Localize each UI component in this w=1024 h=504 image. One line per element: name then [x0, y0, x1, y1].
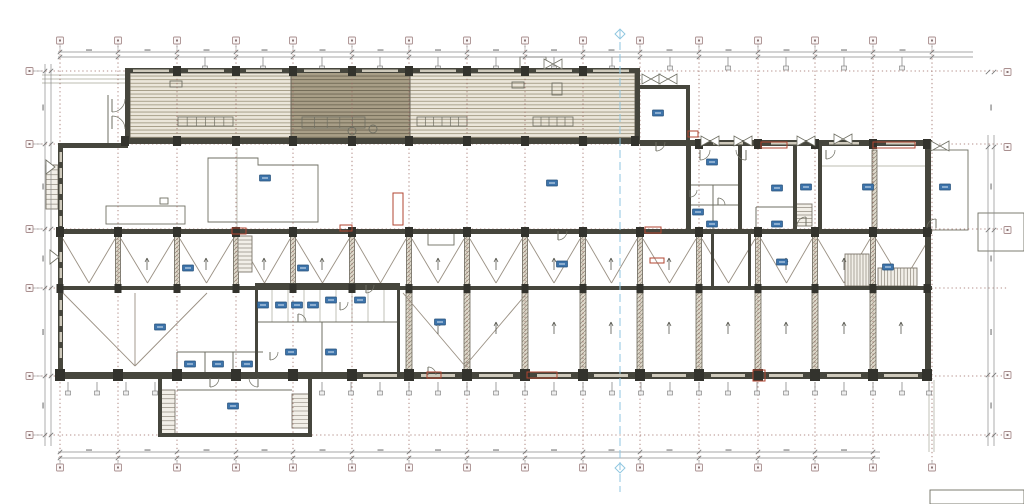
- grid-bubble-label: [176, 40, 178, 42]
- dimension-text-mark: [784, 449, 790, 451]
- window-strip: [884, 374, 918, 377]
- grid-bubble-label: [931, 40, 933, 42]
- grid-bubble-label: [235, 467, 237, 469]
- dimension-text-mark: [204, 449, 210, 451]
- grid-bubble-label: [639, 40, 641, 42]
- column-block: [923, 139, 931, 149]
- grid-bubble-label: [408, 40, 410, 42]
- column-block: [922, 369, 932, 381]
- hanger-box: [523, 391, 528, 395]
- hall-hatch-area: [410, 73, 635, 138]
- column-block: [121, 136, 129, 146]
- hanger-box: [610, 391, 615, 395]
- window-strip: [362, 70, 398, 73]
- hanger-box: [436, 391, 441, 395]
- dimension-text-mark: [900, 49, 906, 51]
- window-strip: [133, 70, 169, 73]
- grid-bubble-label: [524, 40, 526, 42]
- hanger-box: [639, 391, 644, 395]
- column-block: [348, 136, 356, 146]
- column-block: [631, 136, 639, 146]
- column-block: [811, 227, 819, 237]
- column-block: [812, 284, 819, 293]
- wall-segment: [255, 283, 400, 286]
- dimension-text-mark: [609, 449, 615, 451]
- layer-hatch: [130, 70, 635, 140]
- column-block: [290, 284, 297, 293]
- window-strip: [537, 374, 571, 377]
- grid-bubble-label: [466, 40, 468, 42]
- dimension-text-mark: [667, 49, 673, 51]
- wall-segment: [397, 283, 400, 373]
- hanger-box: [668, 66, 673, 70]
- column-block: [520, 369, 530, 381]
- dimension-text-mark: [262, 49, 268, 51]
- window-strip: [60, 184, 63, 194]
- dimension-text-mark: [145, 449, 151, 451]
- hanger-box: [842, 66, 847, 70]
- column-block: [753, 369, 763, 381]
- wall-segment: [58, 286, 932, 290]
- dimension-text-mark: [86, 449, 92, 451]
- hall-hatch-area: [291, 70, 410, 140]
- column-block: [694, 369, 704, 381]
- wall-segment: [635, 68, 640, 143]
- window-strip: [60, 332, 63, 342]
- wall-segment: [158, 377, 162, 435]
- dimension-text-mark: [493, 449, 499, 451]
- hanger-box: [900, 391, 905, 395]
- column-block: [233, 284, 240, 293]
- window-strip: [60, 268, 63, 278]
- hanger-box: [900, 66, 905, 70]
- column-block: [635, 369, 645, 381]
- wall-segment: [308, 377, 312, 433]
- column-block: [348, 66, 356, 76]
- dimension-text-mark: [990, 329, 992, 335]
- column-block: [923, 227, 931, 237]
- window-strip: [60, 216, 63, 226]
- grid-bubble-label: [59, 467, 61, 469]
- dimension-text-mark: [42, 403, 44, 409]
- grid-bubble-label: [639, 467, 641, 469]
- hanger-box: [668, 391, 673, 395]
- dimension-text-mark: [609, 49, 615, 51]
- column-block: [114, 227, 122, 237]
- window-strip: [60, 300, 63, 310]
- window-strip: [829, 142, 859, 145]
- column-block: [522, 284, 529, 293]
- window-strip: [60, 200, 63, 210]
- window-strip: [60, 252, 63, 262]
- column-block: [232, 136, 240, 146]
- grid-bubble-label: [292, 467, 294, 469]
- grid-bubble-label: [1007, 374, 1009, 376]
- hanger-box: [66, 391, 71, 395]
- staircase: [238, 236, 252, 272]
- dimension-text-mark: [145, 49, 151, 51]
- window-strip: [188, 70, 224, 73]
- room-outline: [208, 158, 318, 222]
- grid-bubble-label: [117, 40, 119, 42]
- grid-bubble-label: [29, 70, 31, 72]
- column-block: [115, 284, 122, 293]
- window-strip: [536, 70, 572, 73]
- hanger-box: [871, 391, 876, 395]
- column-block: [231, 369, 241, 381]
- column-block: [924, 284, 931, 293]
- dimension-text-mark: [726, 49, 732, 51]
- wall-segment: [158, 433, 312, 437]
- column-block: [810, 369, 820, 381]
- column-block: [696, 284, 703, 293]
- dimension-text-mark: [204, 49, 210, 51]
- dimension-text-mark: [42, 105, 44, 111]
- column-block: [463, 227, 471, 237]
- dimension-text-mark: [435, 49, 441, 51]
- wall-segment: [793, 146, 797, 231]
- column-block: [405, 66, 413, 76]
- hanger-box: [813, 391, 818, 395]
- column-block: [405, 136, 413, 146]
- grid-bubble-label: [698, 467, 700, 469]
- dimension-text-mark: [86, 49, 92, 51]
- window-strip: [769, 374, 803, 377]
- column-block: [289, 136, 297, 146]
- wall-segment: [640, 85, 690, 89]
- dimension-text-mark: [667, 449, 673, 451]
- dimension-text-mark: [378, 49, 384, 51]
- column-block: [695, 227, 703, 237]
- grid-bubble-label: [235, 40, 237, 42]
- column-block: [463, 66, 471, 76]
- column-block: [637, 284, 644, 293]
- window-strip: [420, 70, 456, 73]
- grid-bubble-label: [292, 40, 294, 42]
- column-block: [404, 369, 414, 381]
- dimension-text-mark: [726, 449, 732, 451]
- dimension-text-mark: [990, 105, 992, 111]
- grid-bubble-label: [582, 40, 584, 42]
- column-block: [113, 369, 123, 381]
- hanger-box: [697, 391, 702, 395]
- column-block: [349, 284, 356, 293]
- grid-bubble-label: [29, 287, 31, 289]
- grid-bubble-label: [466, 467, 468, 469]
- floor-plan-canvas: [0, 0, 1024, 504]
- grid-bubble-label: [931, 467, 933, 469]
- grid-bubble-label: [1007, 146, 1009, 148]
- column-block: [172, 369, 182, 381]
- column-block: [405, 227, 413, 237]
- hanger-box: [124, 391, 129, 395]
- wall-segment: [686, 146, 691, 231]
- grid-bubble-label: [757, 467, 759, 469]
- hanger-box: [378, 391, 383, 395]
- hanger-box: [494, 391, 499, 395]
- column-block: [406, 284, 413, 293]
- window-strip: [479, 374, 513, 377]
- window-strip: [363, 374, 397, 377]
- grid-bubble-label: [814, 467, 816, 469]
- grid-bubble-label: [176, 467, 178, 469]
- hanger-box: [153, 391, 158, 395]
- wall-segment: [925, 146, 931, 378]
- column-block: [521, 227, 529, 237]
- grid-bubble-label: [59, 40, 61, 42]
- grid-bubble-label: [29, 228, 31, 230]
- column-block: [463, 136, 471, 146]
- grid-bubble-label: [582, 467, 584, 469]
- column-block: [521, 66, 529, 76]
- window-strip: [652, 374, 686, 377]
- hanger-box: [726, 66, 731, 70]
- hanger-box: [407, 391, 412, 395]
- grid-bubble-label: [117, 467, 119, 469]
- grid-bubble-label: [29, 375, 31, 377]
- window-strip: [827, 374, 861, 377]
- grid-bubble-label: [1007, 229, 1009, 231]
- grid-bubble-label: [757, 40, 759, 42]
- wall-segment: [125, 138, 640, 144]
- hanger-box: [581, 391, 586, 395]
- column-block: [173, 136, 181, 146]
- column-block: [347, 369, 357, 381]
- wall-segment: [58, 229, 932, 234]
- grid-bubble-label: [29, 434, 31, 436]
- grid-bubble-label: [524, 467, 526, 469]
- grid-bubble-label: [1007, 71, 1009, 73]
- column-block: [56, 227, 64, 237]
- column-block: [755, 284, 762, 293]
- dimension-text-mark: [262, 449, 268, 451]
- grid-bubble-label: [814, 40, 816, 42]
- dimension-text-mark: [42, 329, 44, 335]
- hanger-box: [842, 391, 847, 395]
- dimension-text-mark: [841, 49, 847, 51]
- grid-bubble-label: [408, 467, 410, 469]
- wall-segment: [818, 146, 822, 231]
- window-strip: [60, 168, 63, 178]
- hanger-box: [552, 391, 557, 395]
- window-strip: [711, 374, 745, 377]
- dimension-text-mark: [320, 449, 326, 451]
- hanger-box: [95, 391, 100, 395]
- column-block: [173, 227, 181, 237]
- dimension-text-mark: [42, 184, 44, 190]
- dimension-text-mark: [841, 449, 847, 451]
- dimension-text-mark: [42, 256, 44, 262]
- column-block: [289, 66, 297, 76]
- column-block: [579, 227, 587, 237]
- window-strip: [60, 348, 63, 358]
- wall-segment: [748, 234, 751, 288]
- hanger-box: [784, 391, 789, 395]
- column-block: [232, 66, 240, 76]
- hanger-box: [927, 391, 932, 395]
- column-block: [288, 369, 298, 381]
- hall-hatch-area: [130, 73, 291, 138]
- dimension-text-mark: [551, 449, 557, 451]
- column-block: [289, 227, 297, 237]
- wall-segment: [255, 283, 258, 373]
- window-strip: [60, 316, 63, 326]
- column-block: [636, 227, 644, 237]
- hanger-box: [465, 391, 470, 395]
- window-strip: [593, 70, 629, 73]
- column-block: [173, 66, 181, 76]
- column-block: [174, 284, 181, 293]
- column-block: [579, 136, 587, 146]
- hanger-box: [726, 391, 731, 395]
- column-block: [462, 369, 472, 381]
- column-block: [868, 369, 878, 381]
- window-strip: [478, 70, 514, 73]
- dimension-text-mark: [784, 49, 790, 51]
- grid-bubble-label: [698, 40, 700, 42]
- window-strip: [421, 374, 455, 377]
- grid-bubble-label: [351, 40, 353, 42]
- grid-bubble-label: [1007, 434, 1009, 436]
- column-block: [754, 227, 762, 237]
- window-strip: [60, 152, 63, 162]
- column-block: [464, 284, 471, 293]
- column-block: [579, 66, 587, 76]
- wall-segment: [125, 68, 130, 143]
- grid-bubble-label: [872, 40, 874, 42]
- dimension-text-mark: [990, 403, 992, 409]
- window-strip: [304, 70, 340, 73]
- hanger-box: [320, 391, 325, 395]
- column-block: [869, 227, 877, 237]
- grid-bubble-label: [872, 467, 874, 469]
- dimension-text-mark: [990, 184, 992, 190]
- hanger-box: [784, 66, 789, 70]
- window-strip: [246, 70, 282, 73]
- dimension-text-mark: [990, 256, 992, 262]
- dimension-text-mark: [493, 49, 499, 51]
- column-block: [578, 369, 588, 381]
- column-block: [55, 369, 65, 381]
- column-block: [580, 284, 587, 293]
- dimension-text-mark: [551, 49, 557, 51]
- hanger-box: [755, 391, 760, 395]
- drawing-area: [0, 0, 1024, 504]
- dimension-text-mark: [435, 449, 441, 451]
- hanger-box: [349, 391, 354, 395]
- wall-segment: [711, 234, 714, 288]
- grid-bubble-label: [351, 467, 353, 469]
- wall-segment: [58, 143, 128, 148]
- window-strip: [594, 374, 628, 377]
- column-block: [57, 284, 64, 293]
- grid-bubble-label: [29, 143, 31, 145]
- column-block: [521, 136, 529, 146]
- dimension-text-mark: [378, 449, 384, 451]
- column-block: [870, 284, 877, 293]
- dimension-text-mark: [320, 49, 326, 51]
